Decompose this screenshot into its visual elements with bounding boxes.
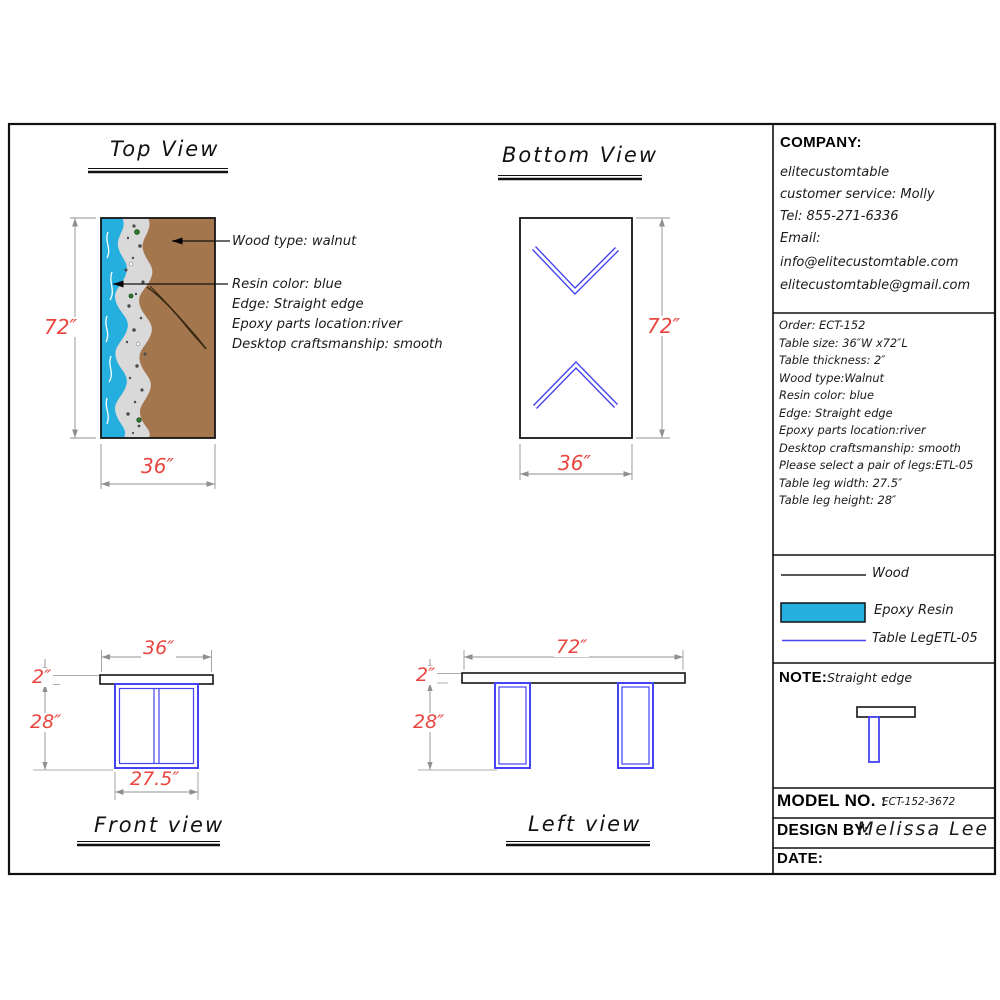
order-leg-height: Table leg height: 28″ <box>779 494 896 507</box>
callout-craftsmanship: Desktop craftsmanship: smooth <box>232 337 443 352</box>
company-email-label: Email: <box>780 232 820 247</box>
callout-epoxy-location: Epoxy parts location:river <box>232 317 402 332</box>
design-by-label: DESIGN BY: <box>777 823 869 839</box>
order-table-size: Table size: 36″W x72″L <box>779 337 908 350</box>
date-label: DATE: <box>777 851 823 866</box>
left-view-legs <box>495 683 653 768</box>
note-sketch-top <box>857 707 915 717</box>
callout-resin-color: Resin color: blue <box>232 277 342 292</box>
left-view-thickness-dim: 2″ <box>414 666 437 685</box>
front-view-leg-width-dim: 27.5″ <box>128 770 181 789</box>
front-view-width-dim: 36″ <box>141 639 176 658</box>
top-view-title: Top View <box>110 139 219 160</box>
legend-epoxy-label: Epoxy Resin <box>874 604 954 619</box>
model-no-value: ECT-152-3672 <box>882 796 955 808</box>
company-name: elitecustomtable <box>780 166 889 181</box>
order-legs-selection: Please select a pair of legs:ETL-05 <box>779 459 973 472</box>
top-view-width-dim: 36″ <box>139 456 176 476</box>
company-label: COMPANY: <box>780 135 862 150</box>
note-label: NOTE: <box>779 670 827 685</box>
front-view-leg-height-dim: 28″ <box>28 713 63 732</box>
top-view-drawing <box>70 169 230 490</box>
front-view-thickness-dim: 2″ <box>30 668 53 687</box>
left-view-length-dim: 72″ <box>554 638 589 657</box>
front-view-tabletop <box>100 675 213 684</box>
drawing-sheet: Top View Bottom View Front view Left vie… <box>0 0 1000 1000</box>
design-by-value: Melissa Lee <box>857 819 989 841</box>
left-view-tabletop <box>462 673 685 683</box>
callout-wood-type: Wood type: walnut <box>232 234 356 249</box>
legend-table-leg-label: Table LegETL-05 <box>872 632 978 647</box>
company-customer-service: customer service: Molly <box>780 188 935 203</box>
bottom-view-width-dim: 36″ <box>556 453 593 473</box>
order-resin-color: Resin color: blue <box>779 389 874 402</box>
company-tel: Tel: 855-271-6336 <box>780 210 899 225</box>
bottom-view-title: Bottom View <box>502 145 658 166</box>
order-craftsmanship: Desktop craftsmanship: smooth <box>779 442 961 455</box>
order-number: Order: ECT-152 <box>779 319 865 332</box>
company-email-1: info@elitecustomtable.com <box>780 256 958 271</box>
order-wood-type: Wood type:Walnut <box>779 372 884 385</box>
callout-edge: Edge: Straight edge <box>232 297 364 312</box>
note-value: Straight edge <box>827 671 912 685</box>
front-view-leg <box>115 684 198 768</box>
model-no-label: MODEL NO. : <box>777 792 887 809</box>
left-view-title: Left view <box>528 814 641 835</box>
bottom-view-length-dim: 72″ <box>645 316 682 336</box>
order-leg-width: Table leg width: 27.5″ <box>779 477 902 490</box>
legend-wood-label: Wood <box>872 567 909 582</box>
order-edge: Edge: Straight edge <box>779 407 893 420</box>
legend-epoxy-swatch <box>781 603 865 622</box>
note-sketch-leg <box>869 717 879 762</box>
legend-glyphs <box>781 575 866 641</box>
order-epoxy-location: Epoxy parts location:river <box>779 424 926 437</box>
front-view-title: Front view <box>94 815 224 836</box>
top-view-length-dim: 72″ <box>42 317 79 337</box>
note-table-sketch <box>857 707 915 762</box>
order-table-thickness: Table thickness: 2″ <box>779 354 886 367</box>
company-email-2: elitecustomtable@gmail.com <box>780 279 970 294</box>
left-view-leg-height-dim: 28″ <box>411 713 446 732</box>
